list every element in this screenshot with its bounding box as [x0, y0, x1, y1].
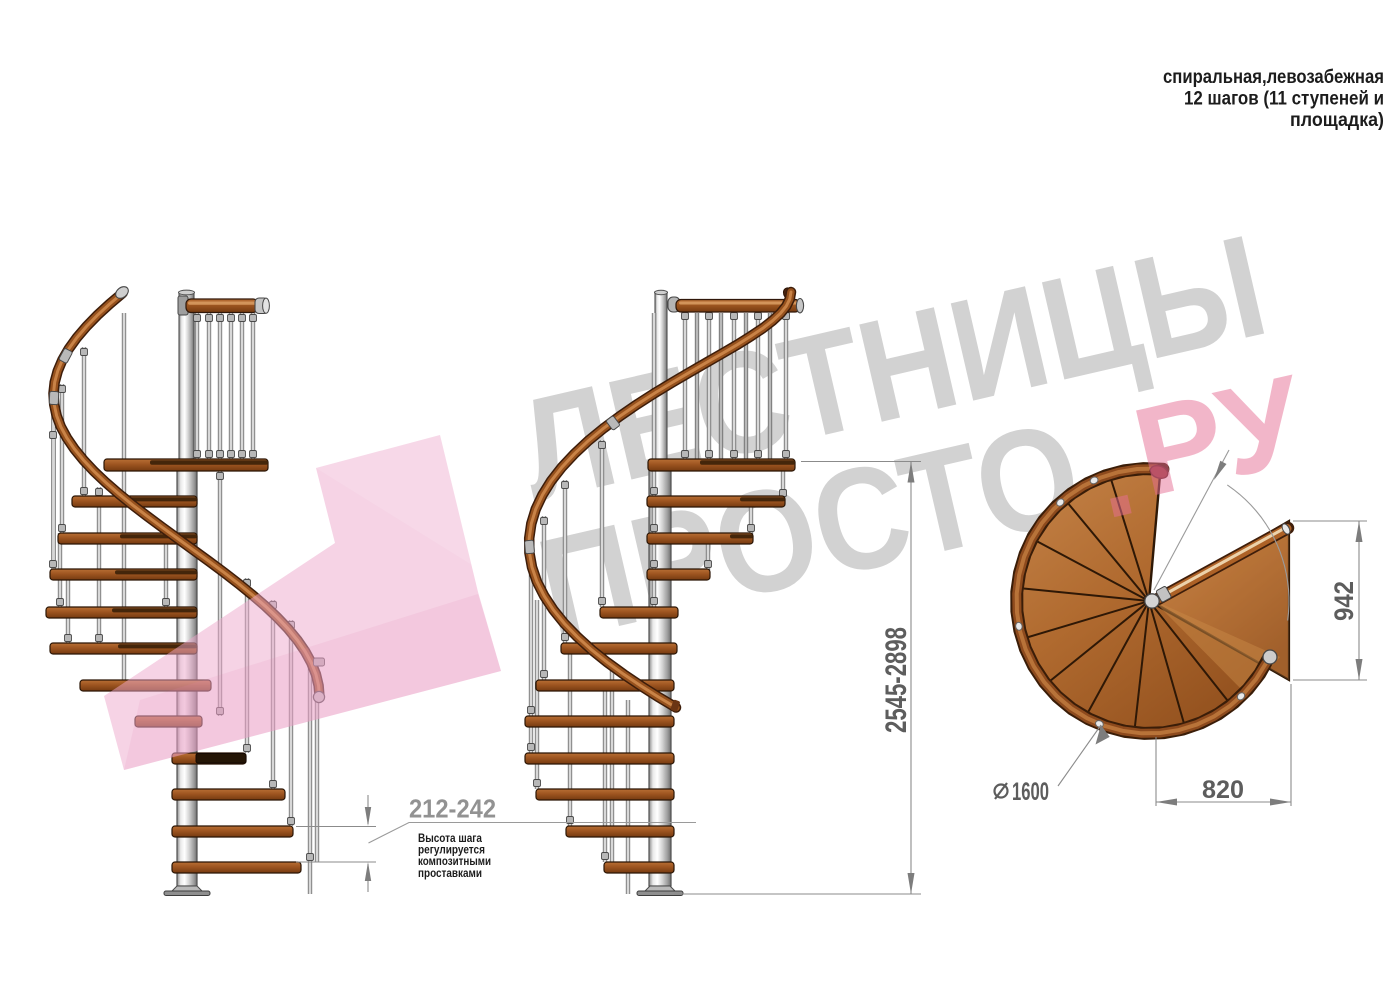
- svg-text:212-242: 212-242: [409, 794, 496, 824]
- svg-text:1600: 1600: [1012, 778, 1049, 806]
- svg-text:композитными: композитными: [418, 856, 491, 868]
- svg-text:Высота шага: Высота шага: [418, 833, 483, 845]
- svg-text:820: 820: [1202, 776, 1244, 804]
- svg-text:проставками: проставками: [418, 868, 482, 880]
- svg-text:площадка): площадка): [1290, 109, 1384, 131]
- svg-text:регулируется: регулируется: [418, 845, 485, 857]
- svg-text:2545-2898: 2545-2898: [880, 627, 913, 733]
- svg-text:942: 942: [1329, 581, 1359, 621]
- svg-text:12 шагов (11 ступеней и: 12 шагов (11 ступеней и: [1184, 88, 1384, 110]
- svg-text:спиральная,левозабежная: спиральная,левозабежная: [1163, 66, 1384, 88]
